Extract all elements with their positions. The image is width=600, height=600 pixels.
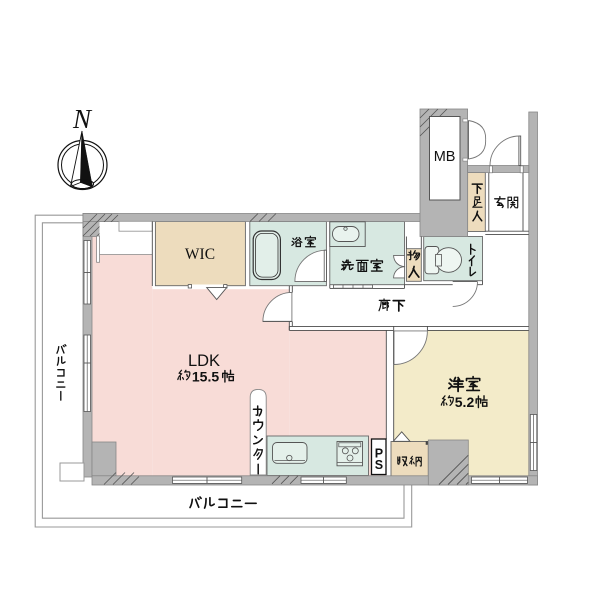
svg-text:5.2: 5.2 — [455, 394, 475, 410]
svg-text:MB: MB — [434, 149, 456, 165]
svg-text:N: N — [72, 104, 93, 134]
svg-text:LDK: LDK — [188, 352, 220, 370]
svg-text:15.5: 15.5 — [192, 368, 219, 384]
svg-text:S: S — [375, 458, 383, 472]
svg-text:WIC: WIC — [185, 246, 215, 263]
